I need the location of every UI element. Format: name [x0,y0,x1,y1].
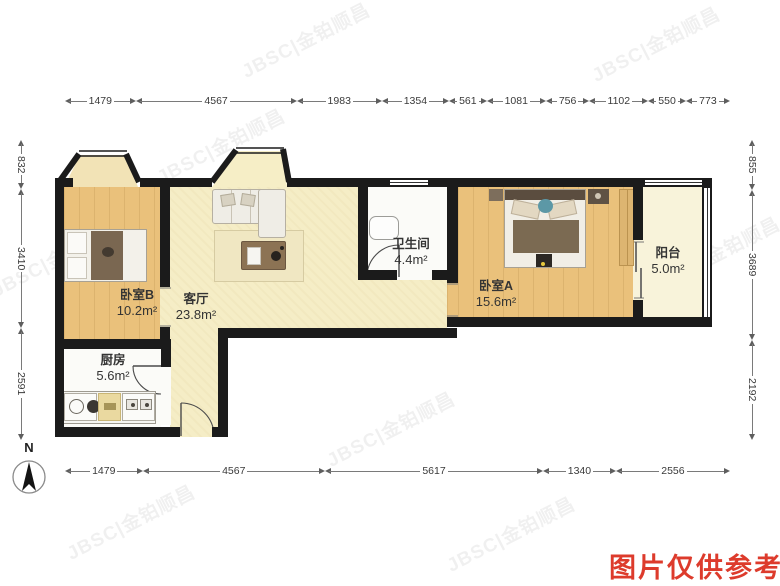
wall [161,339,171,367]
wall [218,328,457,338]
doorway-bathroom [397,270,432,280]
dim-segment: 4567 [136,94,297,108]
room-label-bathroom: 卫生间 4.4m² [369,236,453,269]
blanket [513,220,579,253]
north-indicator: N [6,441,52,502]
room-label-living: 客厅 23.8m² [151,291,241,324]
kitchen-counter [62,391,156,424]
pillow [67,232,87,254]
dim-segment: 1479 [65,464,143,478]
dim-segment: 1983 [297,94,382,108]
dot [145,403,149,407]
dim-segment: 561 [449,94,487,108]
bed-double [64,229,147,282]
stove-plate [140,399,152,410]
wall [633,300,643,317]
hallway-floor [170,338,218,427]
wall [55,178,64,436]
wall [55,178,73,187]
dim-segment: 550 [648,94,686,108]
wall [702,178,712,188]
dim-segment: 3689 [745,190,759,340]
watermark-text: JBSC|金铂顺昌 [587,0,725,88]
room-area: 5.0m² [625,261,711,278]
dim-segment: 1340 [543,464,616,478]
wall [287,178,390,187]
room-label-kitchen: 厨房 5.6m² [70,352,156,385]
north-label: N [6,441,52,455]
wall [358,270,397,280]
floorplan-canvas: JBSC|金铂顺昌 JBSC|金铂顺昌 JBSC|金铂顺昌 JBSC|金铂顺昌 … [0,0,780,586]
stove-plate [126,399,138,410]
wall [55,427,161,437]
balcony-top-window [645,178,702,187]
pillow [511,199,542,219]
cushion-accent [102,247,114,257]
dim-segment: 1479 [65,94,136,108]
nightstand [489,189,503,201]
wall [447,317,712,327]
dot [131,403,135,407]
cutting-board [104,403,116,410]
dim-segment: 1081 [487,94,546,108]
dim-row-top: 1479 4567 1983 1354 561 1081 756 1102 55… [65,94,730,108]
dim-segment: 773 [686,94,730,108]
wall [428,178,645,187]
dim-segment: 855 [745,140,759,190]
tray [247,247,261,265]
bed-bench-item [536,254,552,267]
north-compass-icon [6,455,52,497]
throw-pillow [240,193,256,207]
room-area: 15.6m² [450,294,542,311]
wall [633,187,643,240]
nightstand [588,189,609,204]
dim-segment: 1354 [382,94,449,108]
cup [280,246,284,250]
doorway-kitchen [161,367,171,425]
room-name: 厨房 [70,352,156,368]
bed-double [504,189,586,268]
coffee-table [241,241,286,270]
room-name: 阳台 [625,245,711,261]
room-label-bedroom-a: 卧室A 15.6m² [450,278,542,311]
room-area: 4.4m² [369,252,453,269]
wall [161,427,180,437]
wall [160,327,170,339]
dim-segment: 756 [546,94,590,108]
sink-bowl [69,399,84,414]
room-area: 5.6m² [70,368,156,385]
dim-segment: 832 [14,140,28,189]
watermark-text: JBSC|金铂顺昌 [152,101,290,189]
watermark-text: JBSC|金铂顺昌 [442,489,580,577]
wall [218,338,228,437]
dot [541,262,545,266]
room-area: 23.8m² [151,307,241,324]
dim-segment: 3410 [14,189,28,328]
counter-board [98,393,121,421]
dim-column-right: 855 3689 2192 [745,140,759,440]
watermark-text: JBSC|金铂顺昌 [237,0,375,84]
dim-segment: 1102 [589,94,648,108]
room-name: 客厅 [151,291,241,307]
bathroom-window [390,178,428,187]
wall [358,187,368,280]
room-name: 卧室A [450,278,542,294]
lamp [595,193,601,199]
wall [140,178,212,187]
dim-row-bottom: 1479 4567 5617 1340 2556 [65,464,730,478]
kettle [271,251,281,261]
dim-segment: 4567 [143,464,325,478]
reference-caption: 图片仅供参考 [609,546,780,585]
sink-unit [64,393,97,421]
watermark-text: JBSC|金铂顺昌 [62,477,200,565]
room-name: 卫生间 [369,236,453,252]
room-label-balcony: 阳台 5.0m² [625,245,711,278]
round-cushion [538,199,553,213]
dim-column-left: 832 3410 2591 [14,140,28,440]
dim-segment: 2556 [616,464,730,478]
stove-unit [122,393,155,421]
pillow [67,257,87,279]
wall [160,187,170,287]
throw-pillow [220,193,236,207]
wall [55,339,161,349]
dim-segment: 2591 [14,328,28,440]
sofa-chaise [258,189,286,238]
watermark-text: JBSC|金铂顺昌 [322,384,460,472]
doorway-entry [180,427,212,437]
dim-segment: 5617 [325,464,543,478]
dim-segment: 2192 [745,340,759,440]
